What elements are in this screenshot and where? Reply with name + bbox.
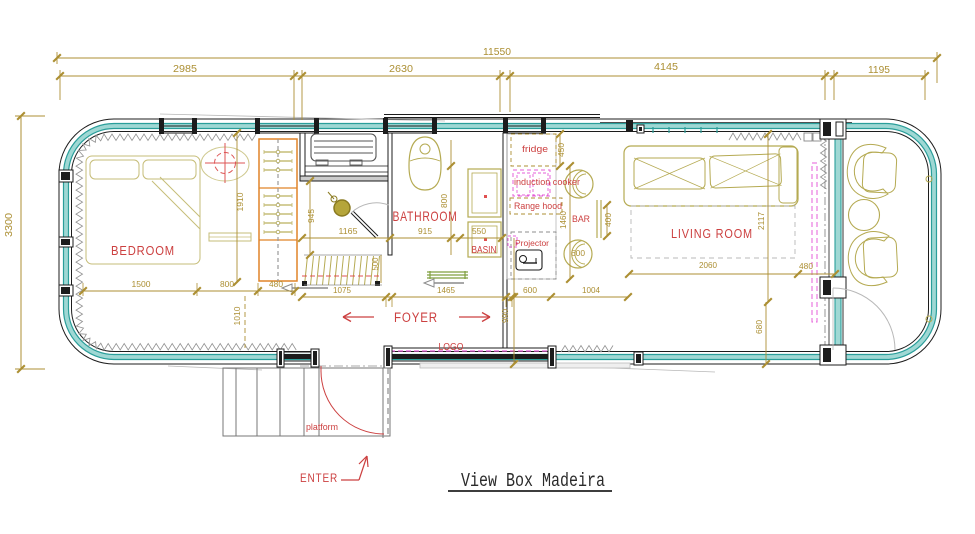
svg-text:1195: 1195 <box>868 65 890 76</box>
svg-text:2117: 2117 <box>756 212 766 230</box>
svg-text:600: 600 <box>523 285 537 295</box>
svg-text:BASIN: BASIN <box>472 245 497 256</box>
svg-text:500: 500 <box>371 257 380 271</box>
svg-text:480: 480 <box>269 279 283 289</box>
svg-text:BAR: BAR <box>572 214 590 225</box>
svg-text:1165: 1165 <box>339 226 358 236</box>
svg-text:800: 800 <box>220 279 234 289</box>
svg-text:990: 990 <box>500 309 510 323</box>
svg-text:11550: 11550 <box>483 47 511 58</box>
svg-text:2985: 2985 <box>173 64 197 75</box>
svg-text:1465: 1465 <box>437 285 455 295</box>
svg-text:4145: 4145 <box>654 62 678 73</box>
svg-text:ENTER: ENTER <box>300 471 338 485</box>
svg-text:Projector: Projector <box>515 238 549 248</box>
svg-text:2060: 2060 <box>699 260 717 270</box>
svg-text:480: 480 <box>799 261 813 271</box>
svg-text:915: 915 <box>418 226 432 236</box>
svg-text:680: 680 <box>754 320 764 334</box>
svg-text:Range hood: Range hood <box>514 201 562 212</box>
svg-text:2630: 2630 <box>389 64 413 75</box>
svg-text:BATHROOM: BATHROOM <box>393 208 458 224</box>
svg-text:induction cooker: induction cooker <box>514 177 580 187</box>
svg-text:platform: platform <box>306 422 338 432</box>
svg-text:550: 550 <box>472 226 486 236</box>
svg-text:LIVING ROOM: LIVING ROOM <box>671 226 753 241</box>
svg-text:800: 800 <box>439 194 449 208</box>
svg-text:945: 945 <box>306 209 316 223</box>
svg-text:600: 600 <box>571 248 585 258</box>
svg-text:1910: 1910 <box>235 192 245 211</box>
svg-text:3300: 3300 <box>4 213 15 237</box>
svg-text:400: 400 <box>603 213 613 227</box>
svg-text:1460: 1460 <box>558 211 568 229</box>
svg-text:fridge: fridge <box>522 144 548 155</box>
svg-text:FOYER: FOYER <box>394 310 438 325</box>
svg-text:1004: 1004 <box>582 285 600 295</box>
svg-text:1075: 1075 <box>333 285 351 295</box>
svg-text:LOGO: LOGO <box>439 342 464 353</box>
svg-text:View Box Madeira: View Box Madeira <box>461 470 605 492</box>
svg-text:1500: 1500 <box>132 279 151 289</box>
svg-text:450: 450 <box>556 143 566 157</box>
svg-text:1010: 1010 <box>232 306 242 325</box>
svg-text:BEDROOM: BEDROOM <box>111 243 175 258</box>
